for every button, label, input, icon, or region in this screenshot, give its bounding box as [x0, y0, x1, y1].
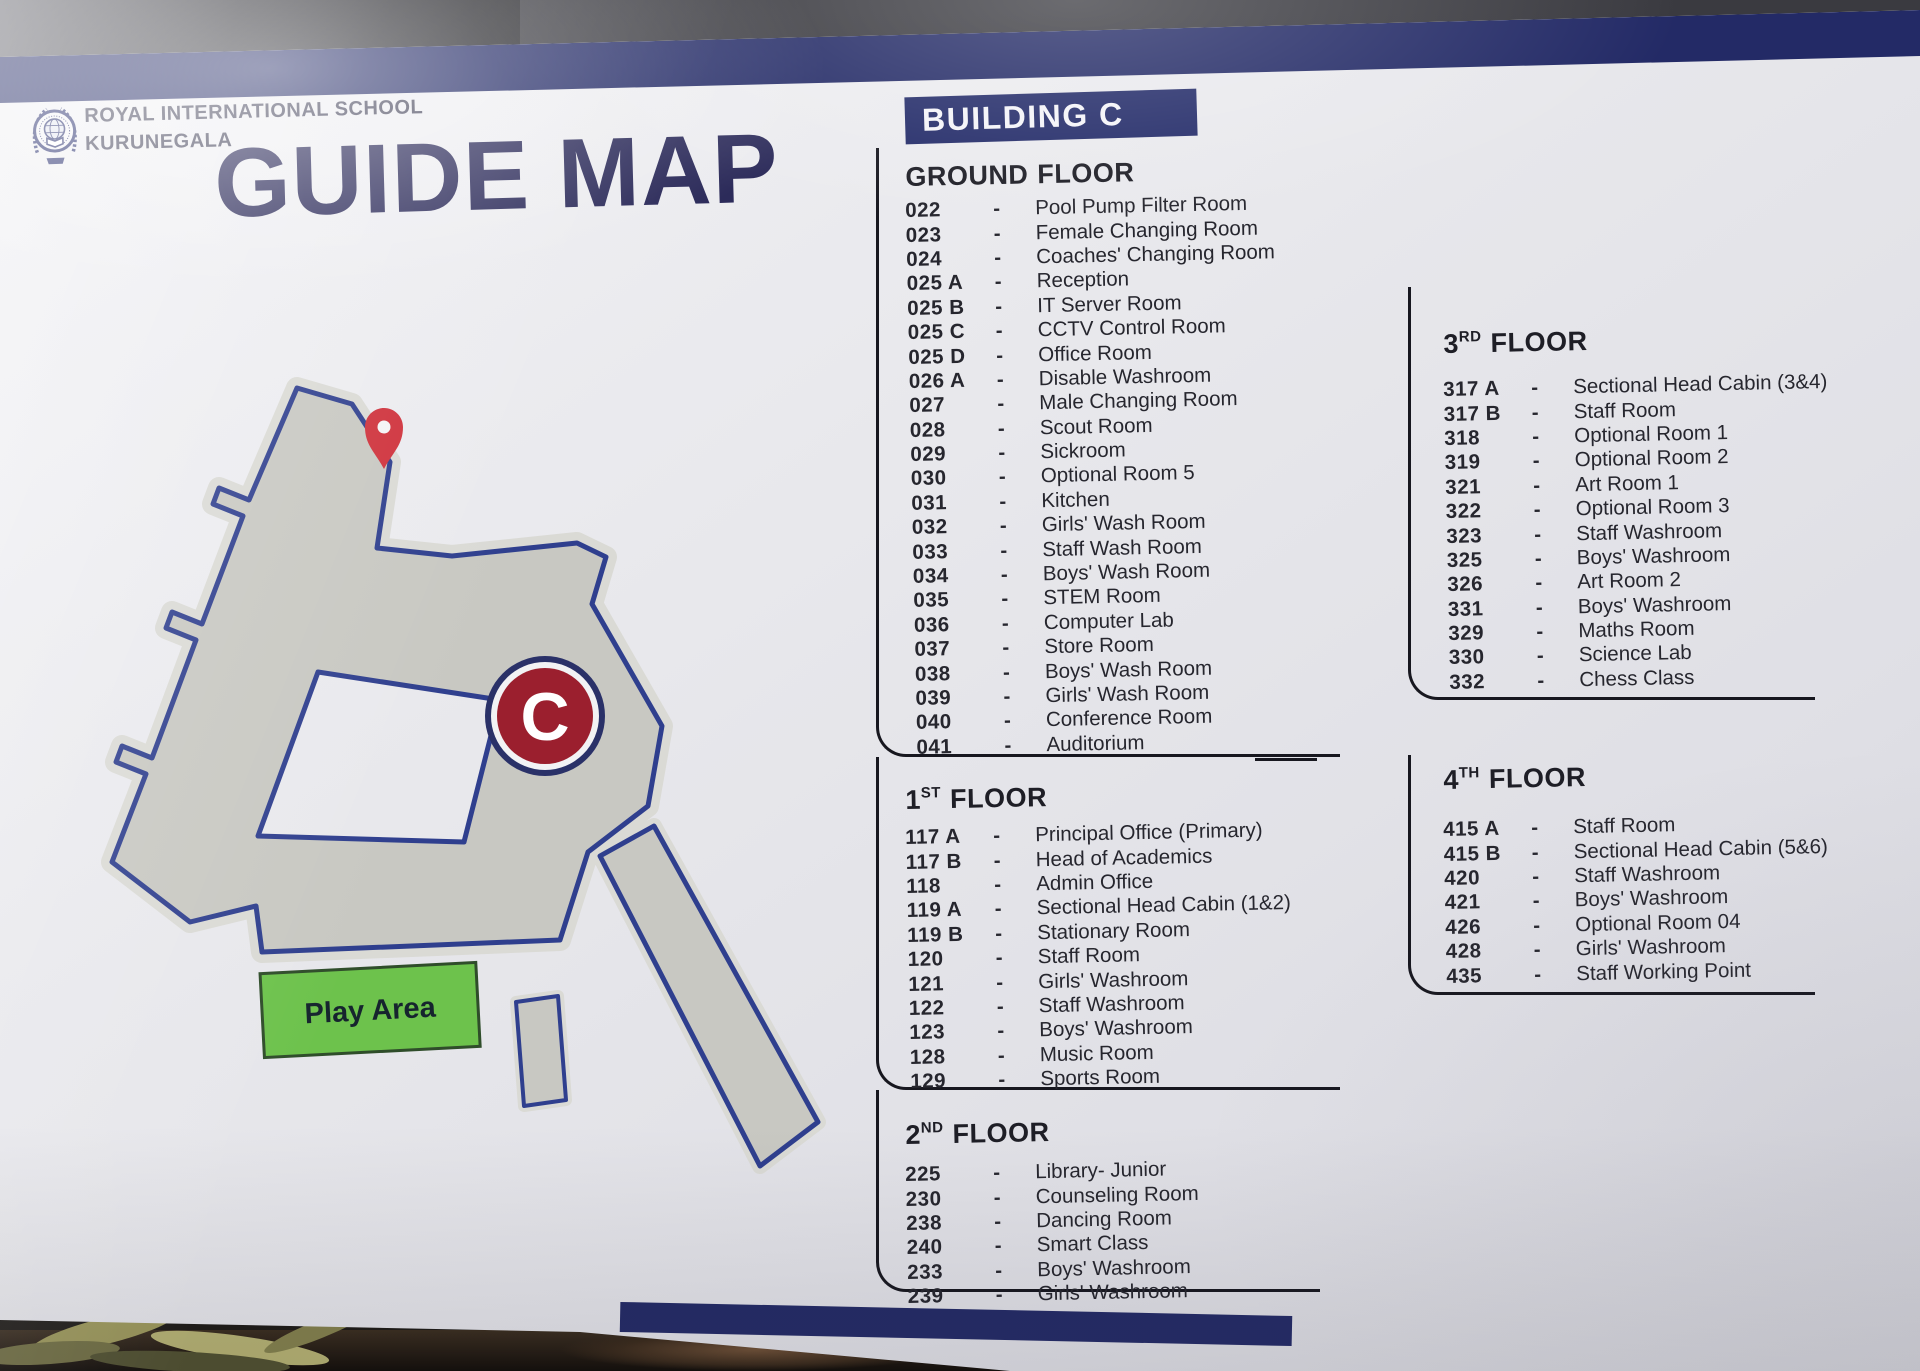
dash-separator: -: [993, 823, 1035, 848]
room-number: 415 B: [1444, 841, 1532, 867]
room-list: 225 - Library- Junior 230 - Counseling R…: [905, 1154, 1323, 1309]
floor-heading: 4THFLOOR: [1443, 753, 1816, 794]
room-number: 122: [909, 995, 997, 1021]
floor-heading-word: FLOOR: [952, 1117, 1050, 1149]
room-number: 120: [908, 946, 996, 972]
dash-separator: -: [998, 1043, 1040, 1068]
dash-separator: -: [996, 970, 1038, 995]
room-number: 037: [914, 636, 1002, 662]
room-number: 026 A: [909, 368, 997, 394]
dash-separator: -: [993, 848, 1035, 873]
room-number: 421: [1445, 890, 1533, 916]
floor-section-fourth: 4THFLOOR 415 A - Staff Room 415 B - Sect…: [1408, 755, 1815, 995]
annex-block: [516, 996, 566, 1106]
dash-separator: -: [1533, 913, 1575, 938]
room-number: 435: [1446, 963, 1534, 989]
dash-separator: -: [1534, 497, 1576, 522]
room-number: 317 A: [1443, 376, 1531, 402]
floor-heading-word: FLOOR: [1490, 326, 1588, 358]
room-number: 329: [1448, 620, 1536, 646]
room-number: 035: [913, 588, 1001, 614]
room-number: 128: [910, 1044, 998, 1070]
floor-heading-word: FLOOR: [1037, 157, 1135, 189]
dash-separator: -: [995, 921, 1037, 946]
dash-separator: -: [997, 1019, 1039, 1044]
dash-separator: -: [994, 872, 1036, 897]
play-area-label: Play Area: [304, 992, 437, 1031]
room-name: Chess Class: [1579, 663, 1821, 692]
dash-separator: -: [998, 1067, 1040, 1092]
dash-separator: -: [1004, 733, 1046, 758]
floor-heading: GROUNDFLOOR: [905, 149, 1341, 191]
room-number: 117 B: [906, 849, 994, 875]
dash-separator: -: [996, 1282, 1038, 1307]
room-number: 027: [909, 392, 997, 418]
floor-heading-word: FLOOR: [1489, 762, 1587, 794]
play-area: Play Area: [260, 962, 480, 1057]
floor-section-ground: GROUNDFLOOR 022 - Pool Pump Filter Room …: [876, 148, 1340, 757]
dash-separator: -: [995, 294, 1037, 319]
page-title: GUIDE MAP: [213, 118, 780, 232]
room-number: 415 A: [1443, 816, 1531, 842]
room-number: 025 C: [908, 319, 996, 345]
dash-separator: -: [1002, 611, 1044, 636]
room-number: 041: [916, 734, 1004, 760]
room-number: 331: [1448, 596, 1536, 622]
room-number: 239: [908, 1283, 996, 1309]
dash-separator: -: [1534, 937, 1576, 962]
dash-separator: -: [993, 1185, 1035, 1210]
room-number: 326: [1447, 571, 1535, 597]
room-name: Auditorium: [1046, 727, 1351, 757]
floor-heading-ordinal: ST: [921, 784, 942, 801]
dash-separator: -: [1001, 587, 1043, 612]
room-name: Staff Working Point: [1576, 957, 1818, 986]
floor-heading-word: FLOOR: [950, 782, 1048, 814]
room-number: 119 A: [907, 898, 995, 924]
floor-heading-label: 2: [905, 1120, 921, 1150]
dash-separator: -: [1003, 684, 1045, 709]
dash-separator: -: [1001, 562, 1043, 587]
room-number: 428: [1446, 938, 1534, 964]
fourth-floor-tick-line: [1255, 758, 1317, 761]
room-number: 318: [1444, 425, 1532, 451]
dash-separator: -: [999, 489, 1041, 514]
dash-separator: -: [993, 196, 1035, 221]
building-banner: BUILDING C: [904, 89, 1197, 145]
floor-heading-ordinal: TH: [1459, 764, 1480, 781]
dash-separator: -: [994, 245, 1036, 270]
annex-halo: [516, 996, 566, 1106]
floor-heading-label: GROUND: [905, 159, 1029, 192]
dash-separator: -: [1531, 375, 1573, 400]
dash-separator: -: [995, 270, 1037, 295]
dash-separator: -: [998, 440, 1040, 465]
room-number: 323: [1446, 523, 1534, 549]
room-number: 319: [1445, 450, 1533, 476]
dash-separator: -: [1004, 709, 1046, 734]
room-number: 025 A: [907, 271, 995, 297]
room-number: 420: [1444, 865, 1532, 891]
room-name: Sports Room: [1040, 1061, 1345, 1091]
sign-bottom-border: [620, 1302, 1292, 1346]
dash-separator: -: [1532, 424, 1574, 449]
room-list: 117 A - Principal Office (Primary) 117 B…: [905, 817, 1346, 1094]
dash-separator: -: [997, 994, 1039, 1019]
dash-separator: -: [998, 416, 1040, 441]
dash-separator: -: [1536, 619, 1578, 644]
dash-separator: -: [1533, 449, 1575, 474]
building-halo: [112, 388, 662, 952]
dash-separator: -: [999, 465, 1041, 490]
floor-heading-label: 4: [1443, 765, 1459, 795]
room-number: 238: [906, 1210, 994, 1236]
floor-heading: 2NDFLOOR: [905, 1107, 1321, 1149]
room-number: 230: [906, 1186, 994, 1212]
dash-separator: -: [1002, 635, 1044, 660]
dash-separator: -: [996, 318, 1038, 343]
building-c-badge: C: [485, 656, 605, 776]
sign-board: ROYAL INTERNATIONAL SCHOOL KURUNEGALA GU…: [0, 0, 1920, 1371]
dash-separator: -: [994, 1209, 1036, 1234]
dash-separator: -: [1535, 571, 1577, 596]
dash-separator: -: [1531, 400, 1573, 425]
dash-separator: -: [993, 221, 1035, 246]
room-number: 036: [914, 612, 1002, 638]
room-number: 330: [1449, 645, 1537, 671]
room-number: 117 A: [905, 824, 993, 850]
room-number: 119 B: [907, 922, 995, 948]
dash-separator: -: [1000, 538, 1042, 563]
room-number: 025 B: [907, 295, 995, 321]
room-number: 321: [1445, 474, 1533, 500]
directory-left-column: GROUNDFLOOR 022 - Pool Pump Filter Room …: [876, 148, 1340, 1292]
room-number: 023: [906, 222, 994, 248]
dash-separator: -: [1534, 522, 1576, 547]
dash-separator: -: [995, 1258, 1037, 1283]
room-number: 039: [915, 685, 1003, 711]
dash-separator: -: [1536, 595, 1578, 620]
room-number: 024: [906, 246, 994, 272]
dash-separator: -: [1534, 962, 1576, 987]
room-number: 225: [905, 1161, 993, 1187]
room-number: 030: [911, 466, 999, 492]
dash-separator: -: [1535, 546, 1577, 571]
room-number: 332: [1449, 669, 1537, 695]
school-crest-icon: [27, 99, 84, 186]
room-number: 233: [907, 1259, 995, 1285]
floor-section-first: 1STFLOOR 117 A - Principal Office (Prima…: [876, 757, 1340, 1090]
floor-heading-ordinal: RD: [1459, 328, 1482, 345]
floor-heading-ordinal: ND: [921, 1119, 944, 1136]
floor-heading-label: 3: [1443, 329, 1459, 359]
dash-separator: -: [1533, 889, 1575, 914]
directory-right-column: 3RDFLOOR 317 A - Sectional Head Cabin (3…: [1408, 287, 1815, 995]
room-number: 240: [907, 1235, 995, 1261]
dash-separator: -: [993, 1160, 1035, 1185]
dash-separator: -: [995, 897, 1037, 922]
guide-map-photo: ROYAL INTERNATIONAL SCHOOL KURUNEGALA GU…: [0, 0, 1920, 1371]
room-number: 118: [906, 873, 994, 899]
room-list: 317 A - Sectional Head Cabin (3&4) 317 B…: [1443, 370, 1822, 695]
dash-separator: -: [1533, 473, 1575, 498]
room-number: 034: [913, 563, 1001, 589]
dash-separator: -: [1531, 815, 1573, 840]
dash-separator: -: [1532, 864, 1574, 889]
room-number: 040: [916, 709, 1004, 735]
floor-heading: 3RDFLOOR: [1443, 317, 1816, 358]
dash-separator: -: [1000, 513, 1042, 538]
dash-separator: -: [996, 945, 1038, 970]
building-wing: [600, 826, 818, 1166]
dash-separator: -: [997, 367, 1039, 392]
floor-heading-label: 1: [905, 785, 921, 815]
dash-separator: -: [1537, 644, 1579, 669]
room-number: 029: [910, 441, 998, 467]
wing-halo: [600, 826, 818, 1166]
room-number: 322: [1446, 498, 1534, 524]
room-name: Girls' Washroom: [1038, 1276, 1323, 1306]
room-number: 317 B: [1444, 401, 1532, 427]
room-number: 031: [911, 490, 999, 516]
floor-section-third: 3RDFLOOR 317 A - Sectional Head Cabin (3…: [1408, 287, 1815, 700]
room-number: 121: [908, 971, 996, 997]
room-list: 415 A - Staff Room 415 B - Sectional Hea…: [1443, 810, 1818, 988]
room-number: 028: [910, 417, 998, 443]
room-number: 025 D: [908, 344, 996, 370]
building-footprint: [112, 388, 662, 952]
badge-letter: C: [520, 679, 569, 755]
room-list: 022 - Pool Pump Filter Room 023 - Female…: [905, 190, 1352, 760]
dash-separator: -: [997, 392, 1039, 417]
room-number: 038: [915, 661, 1003, 687]
room-number: 123: [909, 1019, 997, 1045]
dash-separator: -: [996, 343, 1038, 368]
dash-separator: -: [1537, 668, 1579, 693]
room-number: 325: [1447, 547, 1535, 573]
dash-separator: -: [1003, 660, 1045, 685]
dash-separator: -: [995, 1234, 1037, 1259]
floor-section-second: 2NDFLOOR 225 - Library- Junior 230 - Cou…: [876, 1090, 1320, 1292]
location-pin-icon: [365, 408, 403, 469]
dash-separator: -: [1531, 840, 1573, 865]
room-number: 022: [905, 197, 993, 223]
floor-heading: 1STFLOOR: [905, 772, 1341, 814]
room-number: 426: [1445, 914, 1533, 940]
room-number: 032: [912, 514, 1000, 540]
room-number: 033: [912, 539, 1000, 565]
